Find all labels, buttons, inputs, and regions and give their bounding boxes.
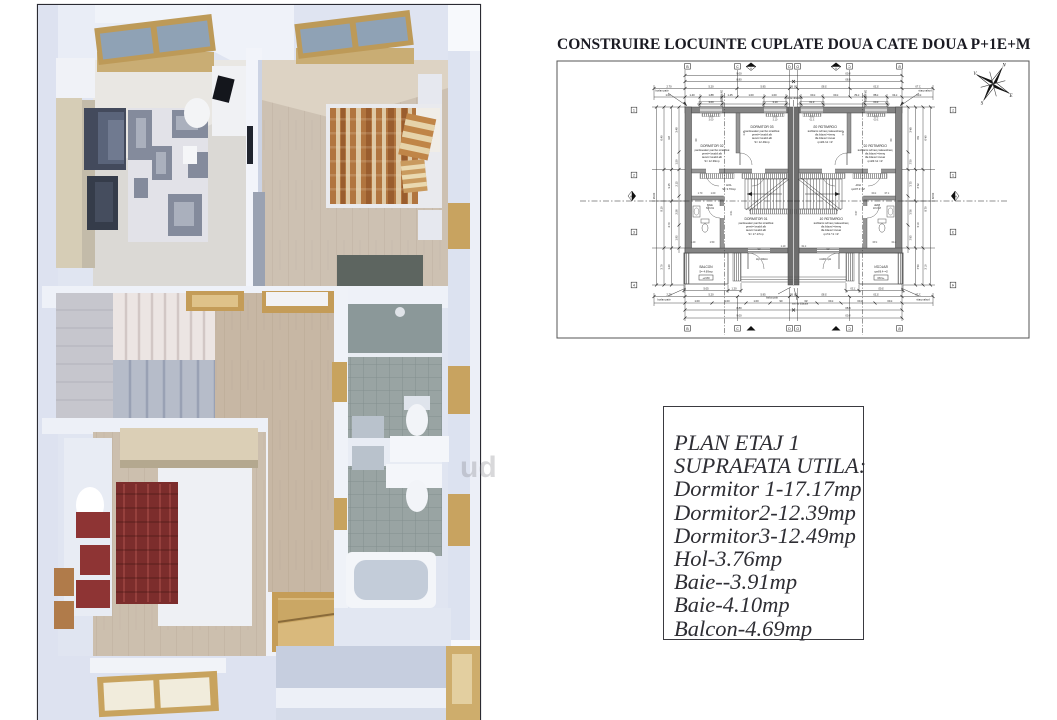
svg-text:3: 3	[633, 231, 635, 235]
svg-text:DORMITOR 03: DORMITOR 03	[750, 125, 773, 129]
svg-text:5.05: 5.05	[703, 287, 709, 291]
svg-text:pereti= lavabil alb: pereti= lavabil alb	[752, 133, 773, 137]
svg-text:16.00: 16.00	[652, 192, 656, 199]
svg-text:1.50: 1.50	[710, 241, 715, 244]
svg-text:3.10: 3.10	[773, 119, 778, 122]
svg-text:ud: ud	[460, 451, 497, 484]
svg-text:pardoseala= parchet stratifica: pardoseala= parchet stratificat	[745, 129, 780, 133]
svg-text:3.70: 3.70	[660, 264, 664, 270]
svg-text:rost du dilatatie: rost du dilatatie	[792, 303, 809, 306]
svg-text:1.20: 1.20	[691, 241, 696, 244]
svg-text:1.00: 1.00	[771, 93, 777, 97]
svg-text:S= 4.69mp: S= 4.69mp	[699, 270, 713, 274]
svg-text:8.80: 8.80	[736, 78, 742, 82]
svg-text:1.50: 1.50	[675, 159, 679, 165]
svg-text:SECTIUNE: SECTIUNE	[721, 90, 724, 102]
svg-text:1.20: 1.20	[667, 264, 671, 270]
svg-text:2.91: 2.91	[730, 210, 733, 215]
svg-text:1.00: 1.00	[753, 299, 759, 303]
svg-text:4.70: 4.70	[667, 222, 671, 228]
svg-text:1: 1	[633, 109, 635, 113]
svg-text:burlan pattr: burlan pattr	[766, 297, 778, 300]
svg-text:burlan pattr: burlan pattr	[655, 89, 668, 93]
svg-text:pereti= lavabil alb: pereti= lavabil alb	[702, 152, 723, 156]
svg-text:2.56: 2.56	[675, 209, 679, 215]
svg-text:3.15: 3.15	[667, 183, 671, 189]
svg-text:3.10: 3.10	[772, 100, 778, 104]
svg-text:A: A	[750, 66, 752, 70]
svg-text:1.00: 1.00	[711, 192, 716, 195]
svg-text:+2.80: +2.80	[702, 276, 710, 280]
svg-text:6.40: 6.40	[660, 135, 664, 141]
svg-text:3.00: 3.00	[709, 119, 714, 122]
svg-text:Hp: 90cm: Hp: 90cm	[756, 257, 769, 261]
svg-text:S= 17.17mp: S= 17.17mp	[748, 232, 764, 236]
svg-text:3.48: 3.48	[675, 127, 679, 133]
svg-text:1.00: 1.00	[694, 299, 700, 303]
svg-text:8.10: 8.10	[660, 206, 664, 212]
svg-text:9.00: 9.00	[736, 72, 742, 76]
svg-text:rost de dilatatie: rost de dilatatie	[786, 97, 803, 100]
svg-text:5.20: 5.20	[708, 85, 714, 89]
svg-text:5.95: 5.95	[760, 85, 766, 89]
svg-text:2.35: 2.35	[743, 130, 746, 135]
svg-text:2.15: 2.15	[675, 181, 679, 187]
svg-text:E: E	[1009, 94, 1013, 99]
svg-text:DORMITOR 02: DORMITOR 02	[700, 144, 723, 148]
svg-text:5.20: 5.20	[708, 293, 714, 297]
svg-text:3.00: 3.00	[708, 100, 714, 104]
svg-text:BALCON: BALCON	[699, 265, 713, 269]
svg-text:burlan pattr: burlan pattr	[657, 298, 670, 302]
svg-text:1.45: 1.45	[727, 93, 733, 97]
svg-text:1.00: 1.00	[724, 299, 730, 303]
svg-text:2.70: 2.70	[666, 85, 672, 89]
svg-text:DORMITOR 01: DORMITOR 01	[744, 217, 767, 221]
svg-text:1.00: 1.00	[748, 93, 754, 97]
svg-text:S= 12.39mp: S= 12.39mp	[704, 159, 720, 163]
svg-text:1.10: 1.10	[781, 245, 786, 248]
svg-text:S= 12.49mp: S= 12.49mp	[754, 140, 770, 144]
svg-text:2: 2	[633, 174, 635, 178]
svg-text:4: 4	[633, 284, 635, 288]
svg-text:1.40: 1.40	[689, 93, 695, 97]
svg-text:A: A	[630, 194, 632, 198]
svg-text:S=3.91: S=3.91	[706, 207, 715, 210]
svg-text:1.88: 1.88	[708, 93, 714, 97]
svg-text:1.20: 1.20	[731, 287, 737, 291]
svg-text:4.8: 4.8	[667, 136, 671, 140]
svg-text:1.00: 1.00	[665, 93, 671, 97]
svg-text:N: N	[1001, 63, 1006, 68]
svg-text:1.95: 1.95	[675, 235, 679, 241]
svg-text:pereti= lavabil alb: pereti= lavabil alb	[746, 225, 767, 229]
svg-text:pardoseala= parchet stratifica: pardoseala= parchet stratificat	[739, 221, 774, 225]
svg-text:1.70: 1.70	[698, 192, 703, 195]
svg-text:9.00: 9.00	[736, 314, 742, 318]
svg-text:8.80: 8.80	[736, 306, 742, 310]
